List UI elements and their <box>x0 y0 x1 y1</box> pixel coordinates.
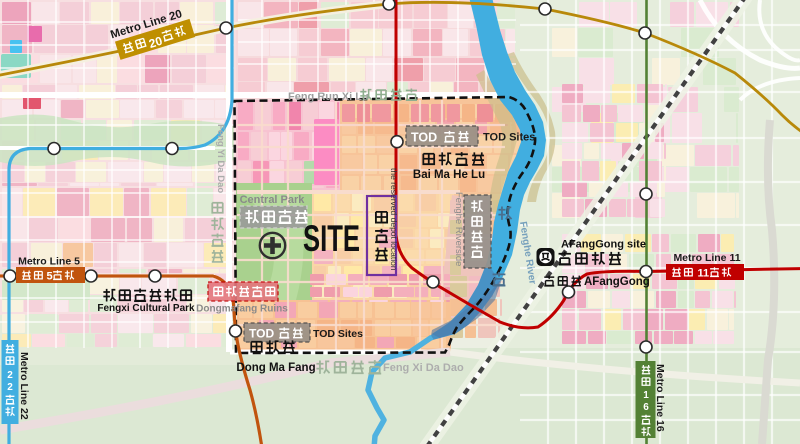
svg-text:Metro Line 16: Metro Line 16 <box>654 364 666 432</box>
svg-text:11: 11 <box>698 268 710 280</box>
svg-text:AFangGong site: AFangGong site <box>561 239 646 251</box>
svg-text:Metro Line 22: Metro Line 22 <box>18 352 30 420</box>
svg-text:Feng Run Xi Lu: Feng Run Xi Lu <box>288 91 369 103</box>
svg-text:6: 6 <box>643 402 649 413</box>
svg-text:TOD Sites: TOD Sites <box>313 328 363 340</box>
svg-text:Dongmafang Ruins: Dongmafang Ruins <box>196 304 288 315</box>
svg-text:Fengxi Cultural Park: Fengxi Cultural Park <box>97 303 195 314</box>
svg-text:the reserved depot location: the reserved depot location <box>389 168 399 271</box>
svg-text:5: 5 <box>47 271 53 283</box>
svg-text:1: 1 <box>643 390 649 401</box>
svg-text:Central Park: Central Park <box>240 194 306 206</box>
svg-text:Metro Line 11: Metro Line 11 <box>673 252 740 264</box>
svg-text:2: 2 <box>7 382 13 393</box>
svg-text:TOD Sites: TOD Sites <box>483 132 535 144</box>
svg-text:Fenghe Riverside: Fenghe Riverside <box>453 192 464 266</box>
svg-text:Metro Line 5: Metro Line 5 <box>18 256 80 268</box>
svg-text:Dong Ma Fang: Dong Ma Fang <box>236 362 315 374</box>
svg-text:2: 2 <box>7 370 13 381</box>
svg-text:Feng Xi Da Dao: Feng Xi Da Dao <box>383 362 464 374</box>
svg-text:TOD: TOD <box>411 131 437 145</box>
svg-text:TOD: TOD <box>249 327 274 341</box>
svg-text:Feng Yi Da Dao: Feng Yi Da Dao <box>215 124 226 193</box>
svg-text:Bai Ma He Lu: Bai Ma He Lu <box>413 169 485 181</box>
svg-text:SITE: SITE <box>303 218 360 259</box>
svg-text:AFangGong: AFangGong <box>584 276 650 288</box>
